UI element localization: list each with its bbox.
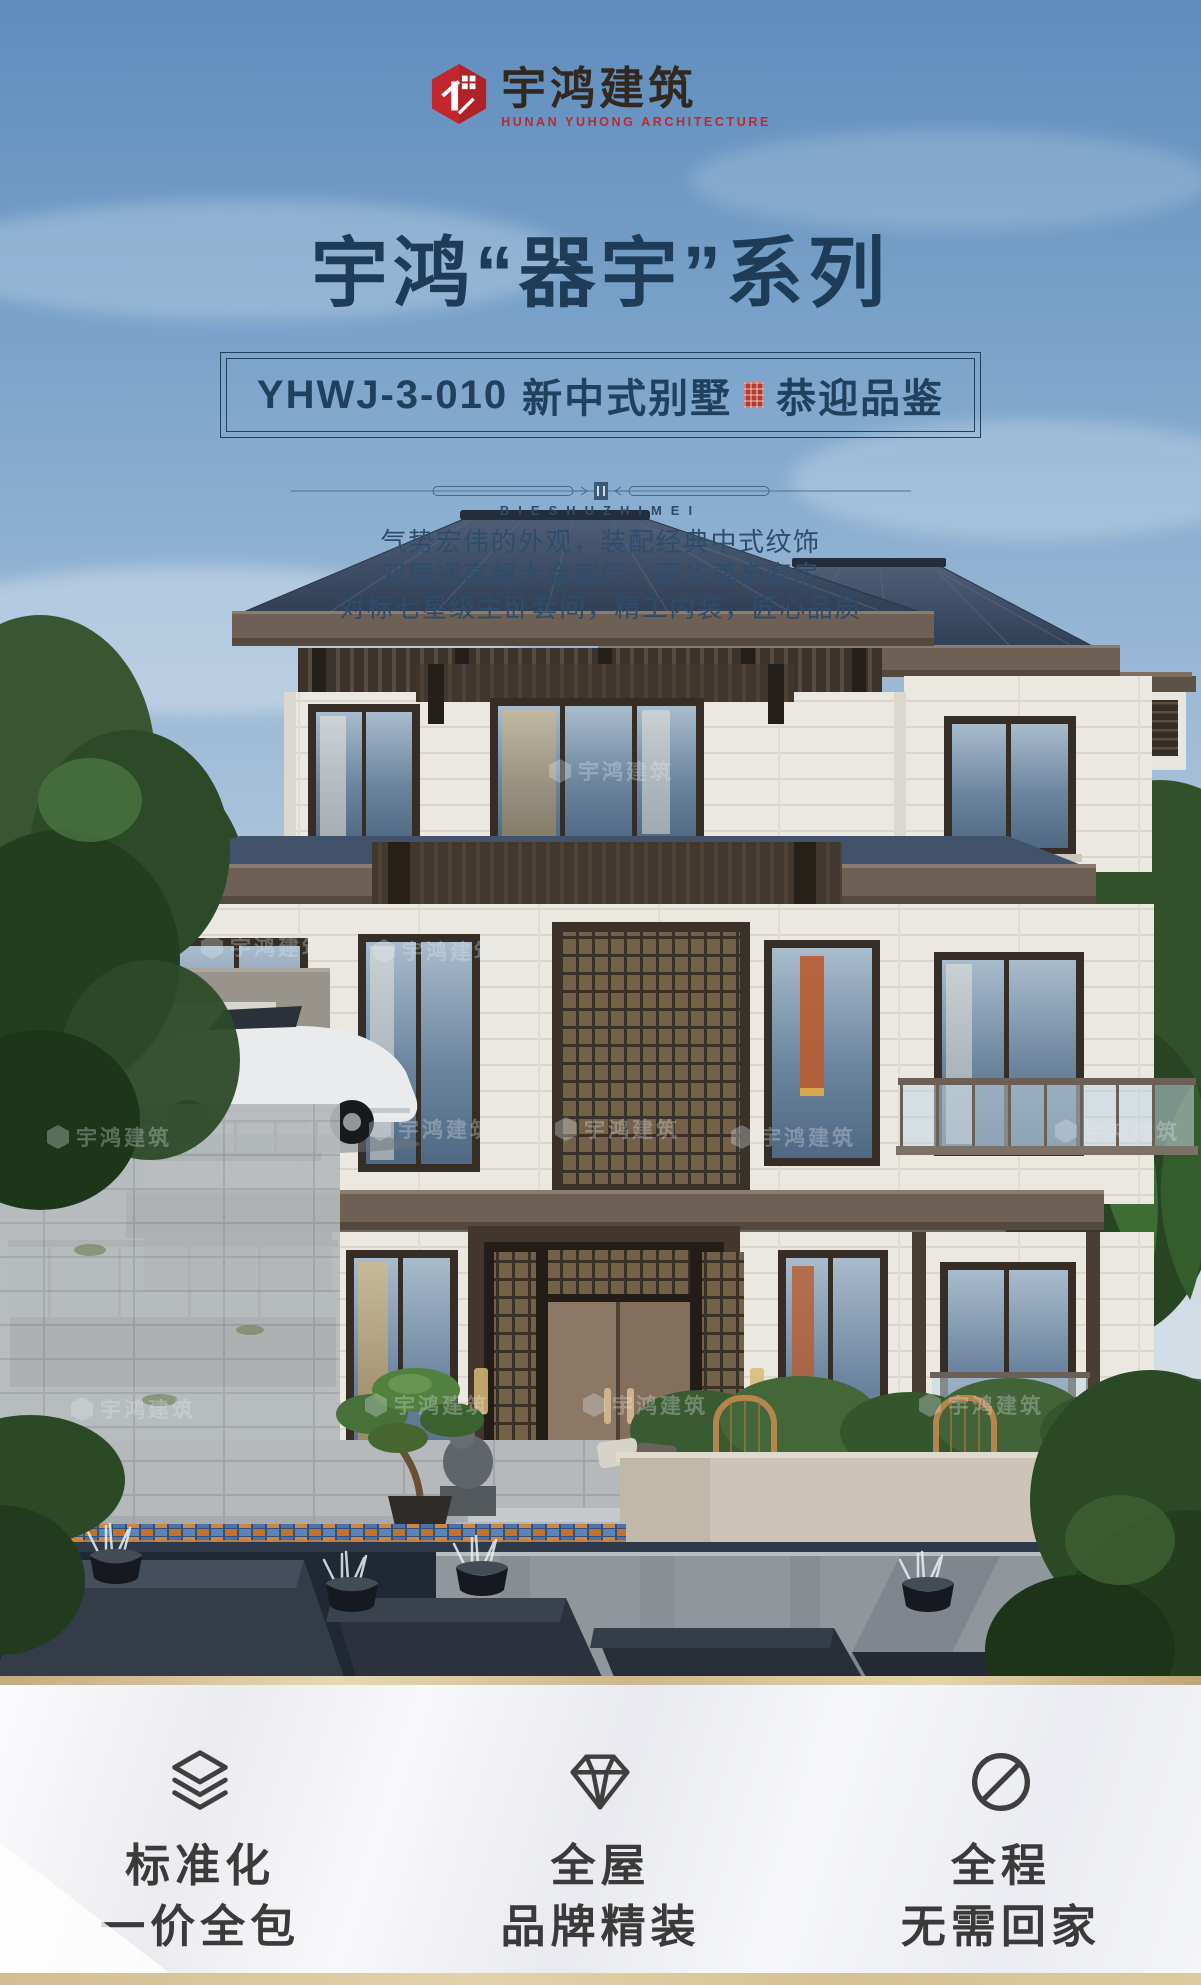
hexagon-building-icon: [430, 62, 488, 131]
series-title: 宇鸿“器宇”系列: [0, 212, 1201, 323]
features-section: 标准化 一价全包 全屋 品牌精装 全程 无需回家: [0, 1685, 1201, 1973]
svg-text:宇鸿建筑: 宇鸿建筑: [760, 1126, 856, 1150]
brand-logo: 宇鸿建筑 HUNAN YUHONG ARCHITECTURE: [0, 62, 1201, 131]
svg-text:宇鸿建筑: 宇鸿建筑: [584, 1118, 680, 1142]
description-line: 对标七星级主卧套间，精工内装，匠心品质: [0, 592, 1201, 625]
feature-item: 全程 无需回家: [801, 1685, 1201, 1958]
feature-subtitle: 无需回家: [801, 1897, 1201, 1958]
divider-caption: BIESHUZHIMEI: [0, 503, 1201, 518]
feature-title: 全程: [801, 1836, 1201, 1897]
feature-title: 全屋: [400, 1836, 800, 1897]
model-code: YHWJ-3-010: [257, 373, 508, 418]
feature-item: 全屋 品牌精装: [400, 1685, 800, 1958]
logo-name: 宇鸿建筑: [501, 65, 697, 113]
svg-text:宇鸿建筑: 宇鸿建筑: [1084, 1120, 1180, 1144]
gold-divider: [0, 1676, 1201, 1685]
svg-text:宇鸿建筑: 宇鸿建筑: [100, 1398, 196, 1422]
logo-tagline: HUNAN YUHONG ARCHITECTURE: [501, 115, 771, 129]
svg-text:宇鸿建筑: 宇鸿建筑: [578, 760, 674, 784]
red-seal-icon: [744, 382, 764, 408]
model-type: 新中式别墅: [522, 366, 732, 424]
svg-text:宇鸿建筑: 宇鸿建筑: [398, 1118, 494, 1142]
svg-text:宇鸿建筑: 宇鸿建筑: [948, 1394, 1044, 1418]
feature-title: 标准化: [0, 1836, 400, 1897]
description-block: 气势宏伟的外观，装配经典中式纹饰 双层通高超大会客厅，豪华尊亲套房 对标七星级主…: [0, 526, 1201, 625]
gold-footer-bar: [0, 1973, 1201, 1985]
svg-text:宇鸿建筑: 宇鸿建筑: [230, 936, 326, 960]
invite-text: 恭迎品鉴: [776, 366, 944, 424]
svg-text:宇鸿建筑: 宇鸿建筑: [402, 940, 498, 964]
svg-text:宇鸿建筑: 宇鸿建筑: [612, 1394, 708, 1418]
layers-icon: [161, 1743, 239, 1826]
description-line: 气势宏伟的外观，装配经典中式纹饰: [0, 526, 1201, 559]
svg-text:宇鸿建筑: 宇鸿建筑: [394, 1394, 490, 1418]
description-line: 双层通高超大会客厅，豪华尊亲套房: [0, 559, 1201, 592]
feature-subtitle: 品牌精装: [400, 1897, 800, 1958]
diamond-icon: [561, 1743, 639, 1826]
model-badge: YHWJ-3-010 新中式别墅 恭迎品鉴: [220, 352, 981, 438]
no-return-icon: [962, 1743, 1040, 1826]
poster-root: 宇鸿建筑 宇鸿建筑 宇鸿建筑 宇鸿建筑 宇鸿建筑 宇鸿建筑 宇鸿建筑 宇鸿建筑 …: [0, 0, 1201, 1985]
svg-text:宇鸿建筑: 宇鸿建筑: [76, 1126, 172, 1150]
